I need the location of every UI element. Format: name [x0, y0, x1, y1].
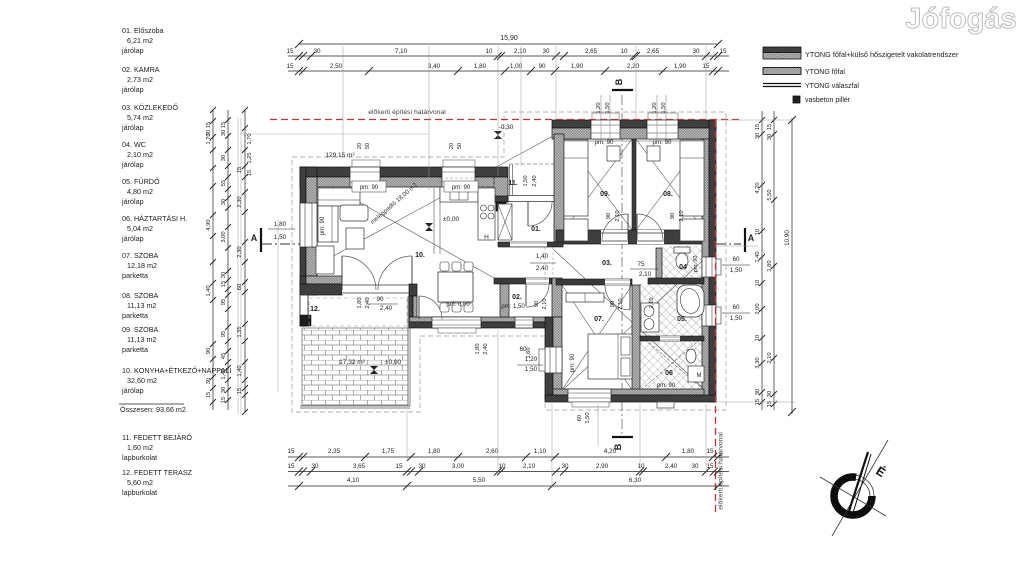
- svg-text:60: 60: [732, 304, 740, 311]
- svg-text:1,80: 1,80: [428, 448, 441, 455]
- svg-text:járólap: járólap: [121, 85, 144, 94]
- svg-text:09. SZOBA: 09. SZOBA: [122, 325, 159, 334]
- svg-text:2,10: 2,10: [542, 298, 548, 309]
- svg-text:12. FEDETT TERASZ: 12. FEDETT TERASZ: [122, 468, 193, 477]
- svg-text:75: 75: [637, 261, 645, 268]
- svg-text:1,20: 1,20: [525, 356, 538, 363]
- svg-text:15: 15: [247, 170, 253, 176]
- svg-text:3,00: 3,00: [221, 231, 227, 242]
- svg-text:A: A: [251, 233, 258, 243]
- svg-text:2,50: 2,50: [330, 63, 343, 70]
- svg-text:-0,30: -0,30: [499, 124, 514, 131]
- svg-text:05.: 05.: [677, 316, 687, 323]
- svg-text:2,10: 2,10: [615, 210, 621, 221]
- svg-text:járólap: járólap: [121, 234, 144, 243]
- svg-text:6,21 m2: 6,21 m2: [127, 36, 153, 45]
- svg-text:15,90: 15,90: [500, 35, 518, 42]
- svg-text:pm: 90: pm: 90: [657, 383, 676, 389]
- svg-text:30: 30: [755, 389, 761, 395]
- svg-text:10: 10: [637, 463, 645, 470]
- svg-text:járólap: járólap: [121, 160, 144, 169]
- svg-text:60: 60: [732, 256, 740, 263]
- svg-text:előkerti építési határvonal: előkerti építési határvonal: [368, 109, 446, 116]
- svg-text:90: 90: [534, 301, 540, 307]
- svg-text:pm: 90: pm: 90: [653, 139, 672, 146]
- svg-text:1,50: 1,50: [525, 366, 538, 373]
- svg-text:15: 15: [706, 448, 714, 455]
- svg-text:1,40: 1,40: [755, 251, 761, 262]
- svg-text:M: M: [697, 373, 702, 379]
- svg-text:1,40: 1,40: [237, 365, 243, 376]
- svg-text:06. HÁZTARTÁSI H.: 06. HÁZTARTÁSI H.: [122, 214, 187, 223]
- svg-text:45: 45: [221, 353, 227, 359]
- svg-text:10: 10: [755, 280, 761, 286]
- svg-text:2,10: 2,10: [523, 463, 536, 470]
- svg-text:1,20: 1,20: [596, 102, 602, 113]
- svg-text:30: 30: [755, 133, 761, 139]
- svg-text:A: A: [748, 233, 755, 243]
- svg-text:09.: 09.: [600, 191, 610, 198]
- svg-text:pm: 90: pm: 90: [693, 256, 699, 273]
- svg-text:2,40: 2,40: [483, 343, 489, 354]
- svg-text:15: 15: [237, 388, 243, 394]
- svg-text:2,10: 2,10: [679, 210, 685, 221]
- svg-text:2,20: 2,20: [627, 63, 640, 70]
- svg-text:pm: 90: pm: 90: [452, 185, 471, 191]
- svg-text:90: 90: [376, 296, 384, 303]
- svg-text:15: 15: [221, 397, 227, 403]
- svg-text:30: 30: [206, 378, 212, 384]
- svg-text:07. SZOBA: 07. SZOBA: [122, 251, 159, 260]
- svg-text:2,90: 2,90: [596, 463, 609, 470]
- svg-text:5,50: 5,50: [767, 189, 773, 200]
- svg-text:30: 30: [221, 199, 227, 205]
- svg-text:05. FÜRDŐ: 05. FÜRDŐ: [122, 177, 160, 186]
- svg-text:1,70: 1,70: [247, 133, 253, 144]
- svg-text:3,40: 3,40: [428, 63, 441, 70]
- svg-text:6,30: 6,30: [629, 477, 642, 484]
- svg-text:1,80: 1,80: [767, 260, 773, 271]
- svg-text:YTONG főfal: YTONG főfal: [805, 69, 845, 76]
- svg-text:Összesen: 93,66 m2: Összesen: 93,66 m2: [120, 405, 186, 414]
- svg-text:pm: 90: pm: 90: [595, 139, 614, 146]
- svg-text:02.: 02.: [512, 294, 522, 301]
- svg-text:vasbeton pillér: vasbeton pillér: [805, 97, 851, 104]
- svg-text:1,50: 1,50: [605, 102, 611, 113]
- svg-text:11,13 m2: 11,13 m2: [127, 301, 156, 310]
- svg-text:4,20: 4,20: [755, 182, 761, 193]
- svg-text:1,50: 1,50: [730, 267, 743, 274]
- svg-text:03. KÖZLEKEDŐ: 03. KÖZLEKEDŐ: [122, 103, 178, 112]
- svg-text:1,40: 1,40: [206, 285, 212, 296]
- svg-text:parketta: parketta: [122, 311, 148, 320]
- svg-text:2,60: 2,60: [486, 448, 499, 455]
- svg-text:3,30: 3,30: [755, 357, 761, 368]
- svg-text:15: 15: [719, 48, 727, 55]
- svg-text:90: 90: [670, 213, 676, 219]
- svg-text:15: 15: [221, 122, 227, 128]
- svg-text:1,80: 1,80: [475, 343, 481, 354]
- svg-text:1,40: 1,40: [221, 368, 227, 379]
- svg-text:pm: 0,00: pm: 0,00: [446, 302, 470, 308]
- svg-text:2,10: 2,10: [767, 352, 773, 363]
- svg-text:90: 90: [610, 301, 616, 307]
- svg-text:90: 90: [606, 213, 612, 219]
- svg-text:20: 20: [449, 143, 455, 149]
- svg-text:lapburkolat: lapburkolat: [122, 488, 157, 497]
- svg-text:1,50: 1,50: [274, 234, 287, 241]
- svg-text:50: 50: [457, 143, 463, 149]
- svg-text:7,10: 7,10: [395, 48, 408, 55]
- svg-text:1,40: 1,40: [536, 253, 549, 260]
- svg-text:02. KAMRA: 02. KAMRA: [122, 65, 160, 74]
- svg-text:pm: 1,50: pm: 1,50: [501, 304, 525, 310]
- svg-text:08.: 08.: [663, 191, 673, 198]
- svg-text:1,80: 1,80: [474, 63, 487, 70]
- svg-text:11. FEDETT BEJÁRÓ: 11. FEDETT BEJÁRÓ: [122, 433, 192, 442]
- svg-text:1,50: 1,50: [661, 102, 667, 113]
- svg-text:3,65: 3,65: [353, 463, 366, 470]
- svg-text:pm: 90: pm: 90: [320, 216, 326, 235]
- svg-text:95: 95: [221, 331, 227, 337]
- svg-text:pm: 90: pm: 90: [360, 185, 379, 191]
- svg-text:4,80 m2: 4,80 m2: [127, 187, 153, 196]
- svg-text:1,50: 1,50: [523, 175, 529, 186]
- svg-text:1,80: 1,80: [357, 297, 363, 308]
- svg-text:11.: 11.: [508, 180, 517, 187]
- svg-text:10: 10: [485, 48, 493, 55]
- svg-text:07.: 07.: [594, 316, 604, 323]
- svg-text:5,74 m2: 5,74 m2: [127, 113, 153, 122]
- svg-text:1,10: 1,10: [534, 448, 547, 455]
- svg-text:10.: 10.: [415, 252, 425, 259]
- svg-text:10: 10: [755, 335, 761, 341]
- svg-text:1,90: 1,90: [571, 63, 584, 70]
- svg-text:30: 30: [767, 391, 773, 397]
- svg-text:2,40: 2,40: [532, 175, 538, 186]
- svg-text:30: 30: [692, 48, 700, 55]
- svg-text:2,30: 2,30: [237, 196, 243, 207]
- svg-text:15: 15: [395, 463, 403, 470]
- svg-text:1,60 m2: 1,60 m2: [127, 443, 153, 452]
- svg-text:11,13 m2: 11,13 m2: [127, 335, 156, 344]
- svg-text:2,35: 2,35: [328, 448, 341, 455]
- svg-text:10,90: 10,90: [784, 230, 791, 246]
- svg-text:15: 15: [221, 281, 227, 287]
- svg-text:15: 15: [206, 392, 212, 398]
- svg-text:1,70: 1,70: [206, 133, 212, 144]
- svg-text:2,10: 2,10: [618, 298, 624, 309]
- svg-text:30: 30: [221, 155, 227, 161]
- svg-text:H: H: [484, 234, 489, 241]
- svg-text:parketta: parketta: [122, 345, 148, 354]
- svg-text:30: 30: [767, 134, 773, 140]
- svg-text:parketta: parketta: [122, 271, 148, 280]
- svg-text:10: 10: [755, 229, 761, 235]
- svg-text:YTONG főfal+külső hőszigetelt: YTONG főfal+külső hőszigetelt vakolatren…: [805, 50, 959, 59]
- svg-text:30: 30: [691, 463, 699, 470]
- svg-text:járólap: járólap: [121, 197, 144, 206]
- svg-text:±0,00: ±0,00: [385, 359, 402, 366]
- svg-text:3,00: 3,00: [452, 463, 465, 470]
- svg-text:2,40: 2,40: [380, 305, 393, 312]
- svg-text:2,73 m2: 2,73 m2: [127, 75, 153, 84]
- svg-text:15: 15: [237, 167, 243, 173]
- svg-text:06: 06: [665, 370, 673, 377]
- svg-text:5,04 m2: 5,04 m2: [127, 224, 153, 233]
- svg-text:5,60 m2: 5,60 m2: [127, 478, 153, 487]
- svg-text:01. Előszoba: 01. Előszoba: [122, 26, 164, 35]
- svg-text:pm: 90: pm: 90: [570, 353, 576, 372]
- svg-text:YTONG válaszfal: YTONG válaszfal: [805, 83, 859, 90]
- svg-text:10. KONYHA+ÉTKEZŐ+NAPPALI: 10. KONYHA+ÉTKEZŐ+NAPPALI: [122, 366, 231, 375]
- svg-text:01.: 01.: [531, 226, 541, 233]
- svg-text:1,25: 1,25: [247, 152, 253, 163]
- svg-text:30: 30: [221, 272, 227, 278]
- svg-text:30: 30: [313, 48, 321, 55]
- svg-text:10: 10: [498, 463, 506, 470]
- svg-text:±0,00: ±0,00: [443, 216, 460, 223]
- svg-text:15: 15: [706, 463, 714, 470]
- svg-text:1,00: 1,00: [510, 63, 523, 70]
- svg-text:60: 60: [577, 415, 583, 421]
- svg-text:129,15 m²: 129,15 m²: [325, 152, 355, 159]
- svg-text:4,10: 4,10: [347, 477, 360, 484]
- svg-text:15: 15: [286, 48, 294, 55]
- svg-text:járólap: járólap: [121, 46, 144, 55]
- svg-text:4,90: 4,90: [206, 219, 212, 230]
- svg-text:1,20: 1,20: [652, 102, 658, 113]
- svg-text:2,10 m2: 2,10 m2: [127, 150, 153, 159]
- svg-text:B: B: [614, 78, 624, 85]
- svg-text:járólap: járólap: [121, 386, 144, 395]
- svg-text:lapburkolat: lapburkolat: [122, 453, 157, 462]
- svg-text:60: 60: [237, 284, 243, 290]
- svg-text:2,65: 2,65: [647, 48, 660, 55]
- svg-text:Jófogás: Jófogás: [905, 3, 1016, 35]
- svg-text:10: 10: [620, 48, 628, 55]
- svg-text:90: 90: [206, 348, 212, 354]
- svg-text:2,65: 2,65: [585, 48, 598, 55]
- svg-text:15: 15: [206, 122, 212, 128]
- svg-text:5,50: 5,50: [473, 477, 486, 484]
- svg-text:2,30: 2,30: [237, 246, 243, 257]
- svg-text:12,18 m2: 12,18 m2: [127, 261, 157, 270]
- svg-text:95: 95: [221, 299, 227, 305]
- svg-text:4,20: 4,20: [604, 448, 617, 455]
- svg-text:30: 30: [561, 463, 569, 470]
- svg-text:30: 30: [311, 463, 319, 470]
- svg-text:2,10: 2,10: [639, 271, 652, 278]
- svg-text:17,32 m²: 17,32 m²: [339, 359, 365, 366]
- svg-text:1,35: 1,35: [237, 326, 243, 337]
- svg-text:1,90: 1,90: [674, 63, 687, 70]
- svg-text:2,10: 2,10: [649, 297, 655, 308]
- svg-text:2,40: 2,40: [365, 297, 371, 308]
- svg-text:90: 90: [538, 63, 546, 70]
- svg-text:2,00: 2,00: [755, 303, 761, 314]
- svg-text:15: 15: [755, 124, 761, 130]
- svg-text:30: 30: [221, 387, 227, 393]
- svg-text:30: 30: [542, 48, 550, 55]
- svg-text:15: 15: [286, 63, 294, 70]
- svg-text:15: 15: [287, 463, 295, 470]
- svg-text:04: 04: [679, 264, 687, 271]
- svg-text:járólap: járólap: [121, 123, 144, 132]
- svg-text:1,50: 1,50: [730, 315, 743, 322]
- svg-text:08. SZOBA: 08. SZOBA: [122, 291, 159, 300]
- svg-text:15: 15: [287, 448, 295, 455]
- svg-text:15: 15: [767, 401, 773, 407]
- svg-text:15: 15: [767, 124, 773, 130]
- svg-text:2,10: 2,10: [514, 48, 527, 55]
- svg-text:20: 20: [357, 143, 363, 149]
- svg-text:12.: 12.: [310, 306, 320, 313]
- svg-text:04. WC: 04. WC: [122, 140, 146, 149]
- svg-text:1,80: 1,80: [682, 448, 695, 455]
- svg-text:1,80: 1,80: [274, 221, 287, 228]
- svg-text:2,40: 2,40: [536, 265, 549, 272]
- svg-text:50: 50: [365, 143, 371, 149]
- svg-text:1,75: 1,75: [382, 448, 395, 455]
- svg-text:55: 55: [221, 180, 227, 186]
- svg-text:30: 30: [418, 463, 426, 470]
- svg-text:30: 30: [221, 130, 227, 136]
- svg-text:2,40: 2,40: [665, 463, 678, 470]
- svg-text:32,60 m2: 32,60 m2: [127, 376, 157, 385]
- svg-text:1,50: 1,50: [585, 412, 591, 423]
- svg-text:03.: 03.: [602, 260, 612, 267]
